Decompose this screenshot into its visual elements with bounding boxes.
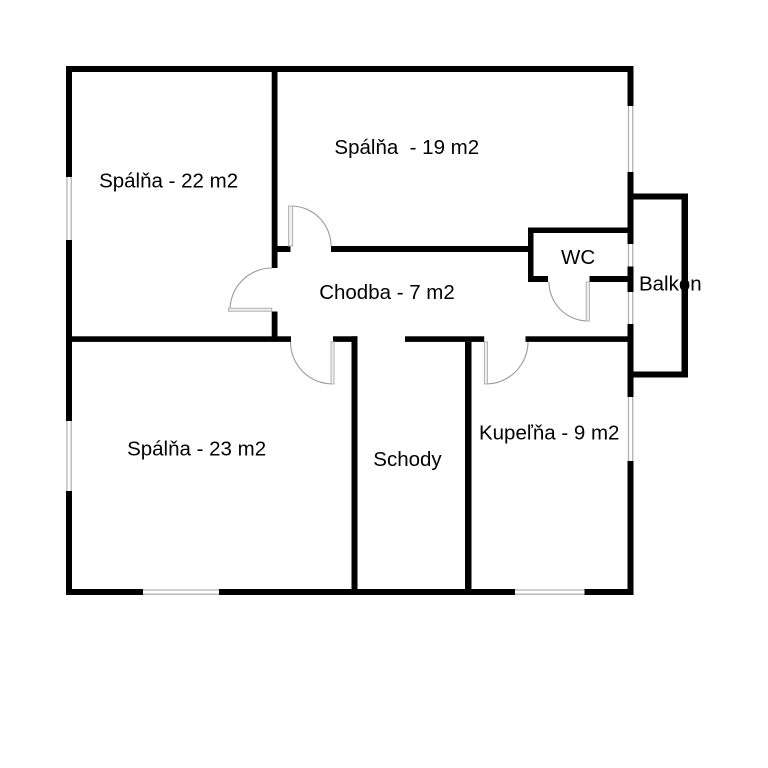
svg-text:Spálňa - 23 m2: Spálňa - 23 m2 bbox=[127, 438, 266, 461]
svg-text:Spálňa - 22 m2: Spálňa - 22 m2 bbox=[99, 169, 238, 192]
svg-text:WC: WC bbox=[561, 246, 595, 269]
svg-text:Schody: Schody bbox=[373, 448, 442, 471]
svg-text:Balkon: Balkon bbox=[639, 272, 702, 295]
svg-text:Kupeľňa - 9 m2: Kupeľňa - 9 m2 bbox=[479, 422, 619, 445]
svg-text:Chodba - 7 m2: Chodba - 7 m2 bbox=[319, 281, 455, 304]
svg-text:Spálňa - 19 m2: Spálňa - 19 m2 bbox=[334, 136, 479, 159]
